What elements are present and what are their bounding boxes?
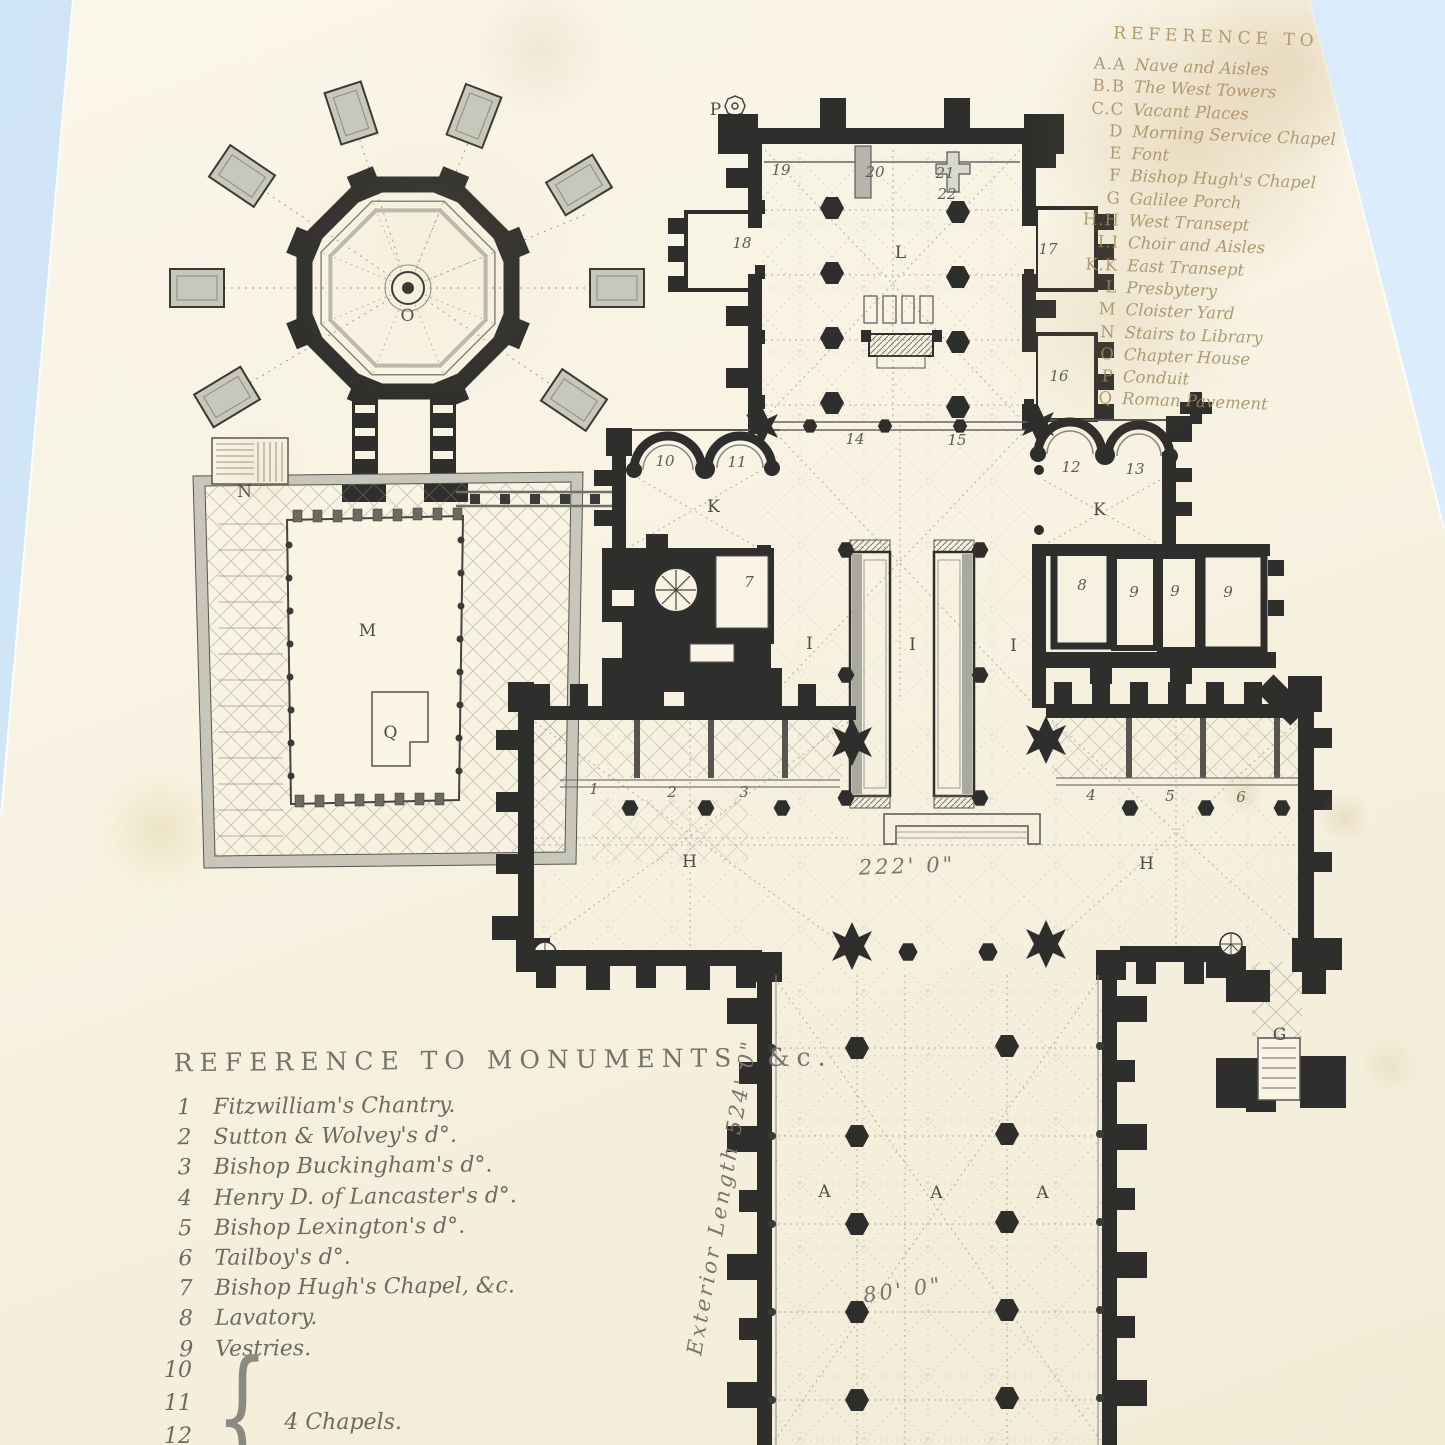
reference-key: P	[1074, 364, 1115, 388]
monument-label: Bishop Hugh's Chapel, &c.	[215, 1273, 515, 1301]
plan-label: 12	[1061, 458, 1080, 476]
plan-label: Q	[384, 723, 399, 743]
plan-label: 15	[947, 431, 966, 449]
monument-row: 3Bishop Buckingham's d°.	[150, 1149, 710, 1184]
grouping-brace: {	[215, 1351, 268, 1445]
monument-row: 4Henry D. of Lancaster's d°.	[150, 1179, 710, 1214]
reference-key: G	[1080, 186, 1121, 210]
reference-key: A.A	[1086, 52, 1127, 76]
plan-label: 19	[771, 161, 790, 179]
spiral-stair	[656, 570, 696, 610]
reference-label: Roman Pavement	[1122, 389, 1268, 414]
plan-label: 9	[1129, 583, 1139, 601]
monument-number: 3	[150, 1153, 192, 1184]
grouped-numbers: 101112	[150, 1358, 192, 1445]
monument-row: 5Bishop Lexington's d°.	[150, 1209, 710, 1244]
plan-label: M	[359, 621, 377, 641]
grouped-number: 10	[150, 1358, 192, 1383]
reference-to-plan-rows: A.ANave and Aisles B.BThe West Towers C.…	[1073, 52, 1386, 420]
reference-key: O	[1074, 342, 1115, 366]
monument-label: Lavatory.	[215, 1305, 318, 1331]
plan-label: I	[909, 635, 917, 655]
plan-label: 17	[1038, 240, 1057, 258]
plan-label: 20	[865, 163, 884, 181]
reference-to-plan-title: REFERENCE TO PLAN	[1113, 23, 1388, 54]
monument-row: 6Tailboy's d°.	[150, 1240, 710, 1275]
plan-label: 3	[739, 783, 749, 801]
monuments-grouped-chapels: 101112 { 4 Chapels.	[150, 1358, 402, 1445]
reference-label: Presbytery	[1126, 278, 1217, 300]
plan-label: 7	[744, 573, 754, 591]
plan-label: 9	[1223, 583, 1233, 601]
monument-number: 4	[150, 1184, 192, 1215]
plan-label: A	[1036, 1183, 1049, 1203]
photo-canvas: O N M Q L K K I I I H H	[0, 0, 1445, 1445]
monument-row: 2Sutton & Wolvey's d°.	[149, 1119, 709, 1154]
reference-key: E	[1082, 141, 1123, 165]
plan-label: A	[930, 1183, 943, 1203]
monuments-rows: 1Fitzwilliam's Chantry. 2Sutton & Wolvey…	[149, 1089, 711, 1366]
reference-label: Font	[1131, 144, 1169, 164]
reference-key: C.C	[1084, 97, 1125, 121]
reference-label: West Transept	[1129, 211, 1250, 235]
plan-label: 1	[589, 780, 599, 798]
central-column	[402, 282, 414, 294]
plan-label: N	[237, 482, 253, 502]
plan-label: 2	[667, 783, 677, 801]
reference-to-monuments-title: REFERENCE TO MONUMENTS, &c.	[174, 1044, 709, 1078]
reference-key: I.I	[1079, 231, 1120, 255]
reference-key: M	[1076, 297, 1117, 321]
monument-row: 1Fitzwilliam's Chantry.	[149, 1089, 709, 1124]
monument-number: 7	[151, 1274, 193, 1305]
grouped-number: 12	[150, 1424, 192, 1445]
plan-label: 9	[1170, 582, 1180, 600]
plan-label: 11	[727, 453, 746, 471]
reference-to-plan-list: REFERENCE TO PLAN A.ANave and Aisles B.B…	[1073, 22, 1388, 420]
engraving-page: O N M Q L K K I I I H H	[0, 0, 1445, 1445]
reference-key: H.H	[1080, 208, 1121, 232]
monument-label: Sutton & Wolvey's d°.	[213, 1123, 457, 1150]
reference-key: D	[1083, 119, 1124, 143]
plan-label: I	[806, 634, 814, 654]
reference-key: K.K	[1078, 253, 1119, 277]
monument-label: Bishop Lexington's d°.	[214, 1214, 465, 1241]
reference-key: L	[1077, 275, 1118, 299]
plan-label: 10	[655, 452, 674, 470]
plan-label: H	[682, 852, 698, 872]
plan-label: L	[895, 243, 907, 263]
reference-label: Cloister Yard	[1125, 300, 1235, 323]
reference-label: Vacant Places	[1133, 100, 1249, 123]
plan-label: 13	[1125, 460, 1144, 478]
plan-label: K	[707, 497, 721, 517]
monument-number: 8	[151, 1304, 193, 1335]
flying-buttress-piers	[170, 81, 644, 430]
monument-label: Tailboy's d°.	[214, 1245, 351, 1271]
cloister	[193, 438, 614, 868]
plan-label: A	[818, 1182, 831, 1202]
grouped-number: 11	[150, 1391, 192, 1416]
plan-label: 16	[1049, 367, 1068, 385]
monument-number: 1	[149, 1093, 191, 1124]
reference-to-monuments-list: REFERENCE TO MONUMENTS, &c. 1Fitzwilliam…	[149, 1044, 712, 1366]
plan-label: 14	[845, 430, 864, 448]
reference-label: Choir and Aisles	[1128, 233, 1266, 257]
plan-label: 8	[1077, 576, 1087, 594]
plan-label: H	[1139, 854, 1155, 874]
plan-label: 22	[937, 185, 956, 203]
plan-label: 18	[732, 234, 751, 252]
plan-label: 4	[1086, 786, 1096, 804]
library-stairs	[212, 438, 288, 484]
reference-label: East Transept	[1127, 256, 1245, 279]
monument-label: Fitzwilliam's Chantry.	[213, 1093, 455, 1120]
reference-label: Nave and Aisles	[1135, 55, 1270, 79]
monument-number: 2	[149, 1123, 191, 1154]
reference-key: Q	[1073, 387, 1114, 411]
reference-key: F	[1081, 164, 1122, 188]
reference-label: Conduit	[1123, 367, 1190, 389]
plan-label: G	[1273, 1025, 1288, 1045]
plan-label: 21	[935, 164, 954, 182]
plan-label: O	[401, 306, 416, 326]
east-transept-south	[1030, 392, 1212, 544]
reference-key: B.B	[1085, 75, 1126, 99]
plan-label: I	[1010, 636, 1018, 656]
monument-label: Henry D. of Lancaster's d°.	[214, 1183, 517, 1211]
east-transept-north	[594, 428, 780, 552]
monument-number: 5	[150, 1214, 192, 1245]
plan-label: P	[710, 100, 722, 120]
grouped-label: 4 Chapels.	[284, 1410, 402, 1445]
monument-label: Bishop Buckingham's d°.	[214, 1153, 493, 1180]
monument-row: 7Bishop Hugh's Chapel, &c.	[151, 1270, 711, 1305]
plan-label: K	[1093, 500, 1107, 520]
plan-label: 6	[1236, 788, 1246, 806]
reference-key: N	[1075, 320, 1116, 344]
plan-label: 222' 0"	[858, 852, 955, 879]
conduit-icon	[725, 96, 745, 116]
reference-label: Stairs to Library	[1124, 323, 1263, 347]
reference-label: Chapter House	[1123, 345, 1250, 369]
bishop-hughs-chapel	[602, 534, 782, 708]
plan-label: 5	[1165, 787, 1175, 805]
reference-label: Galilee Porch	[1129, 189, 1241, 212]
reference-label: The West Towers	[1134, 78, 1277, 102]
monument-number: 6	[150, 1244, 192, 1275]
